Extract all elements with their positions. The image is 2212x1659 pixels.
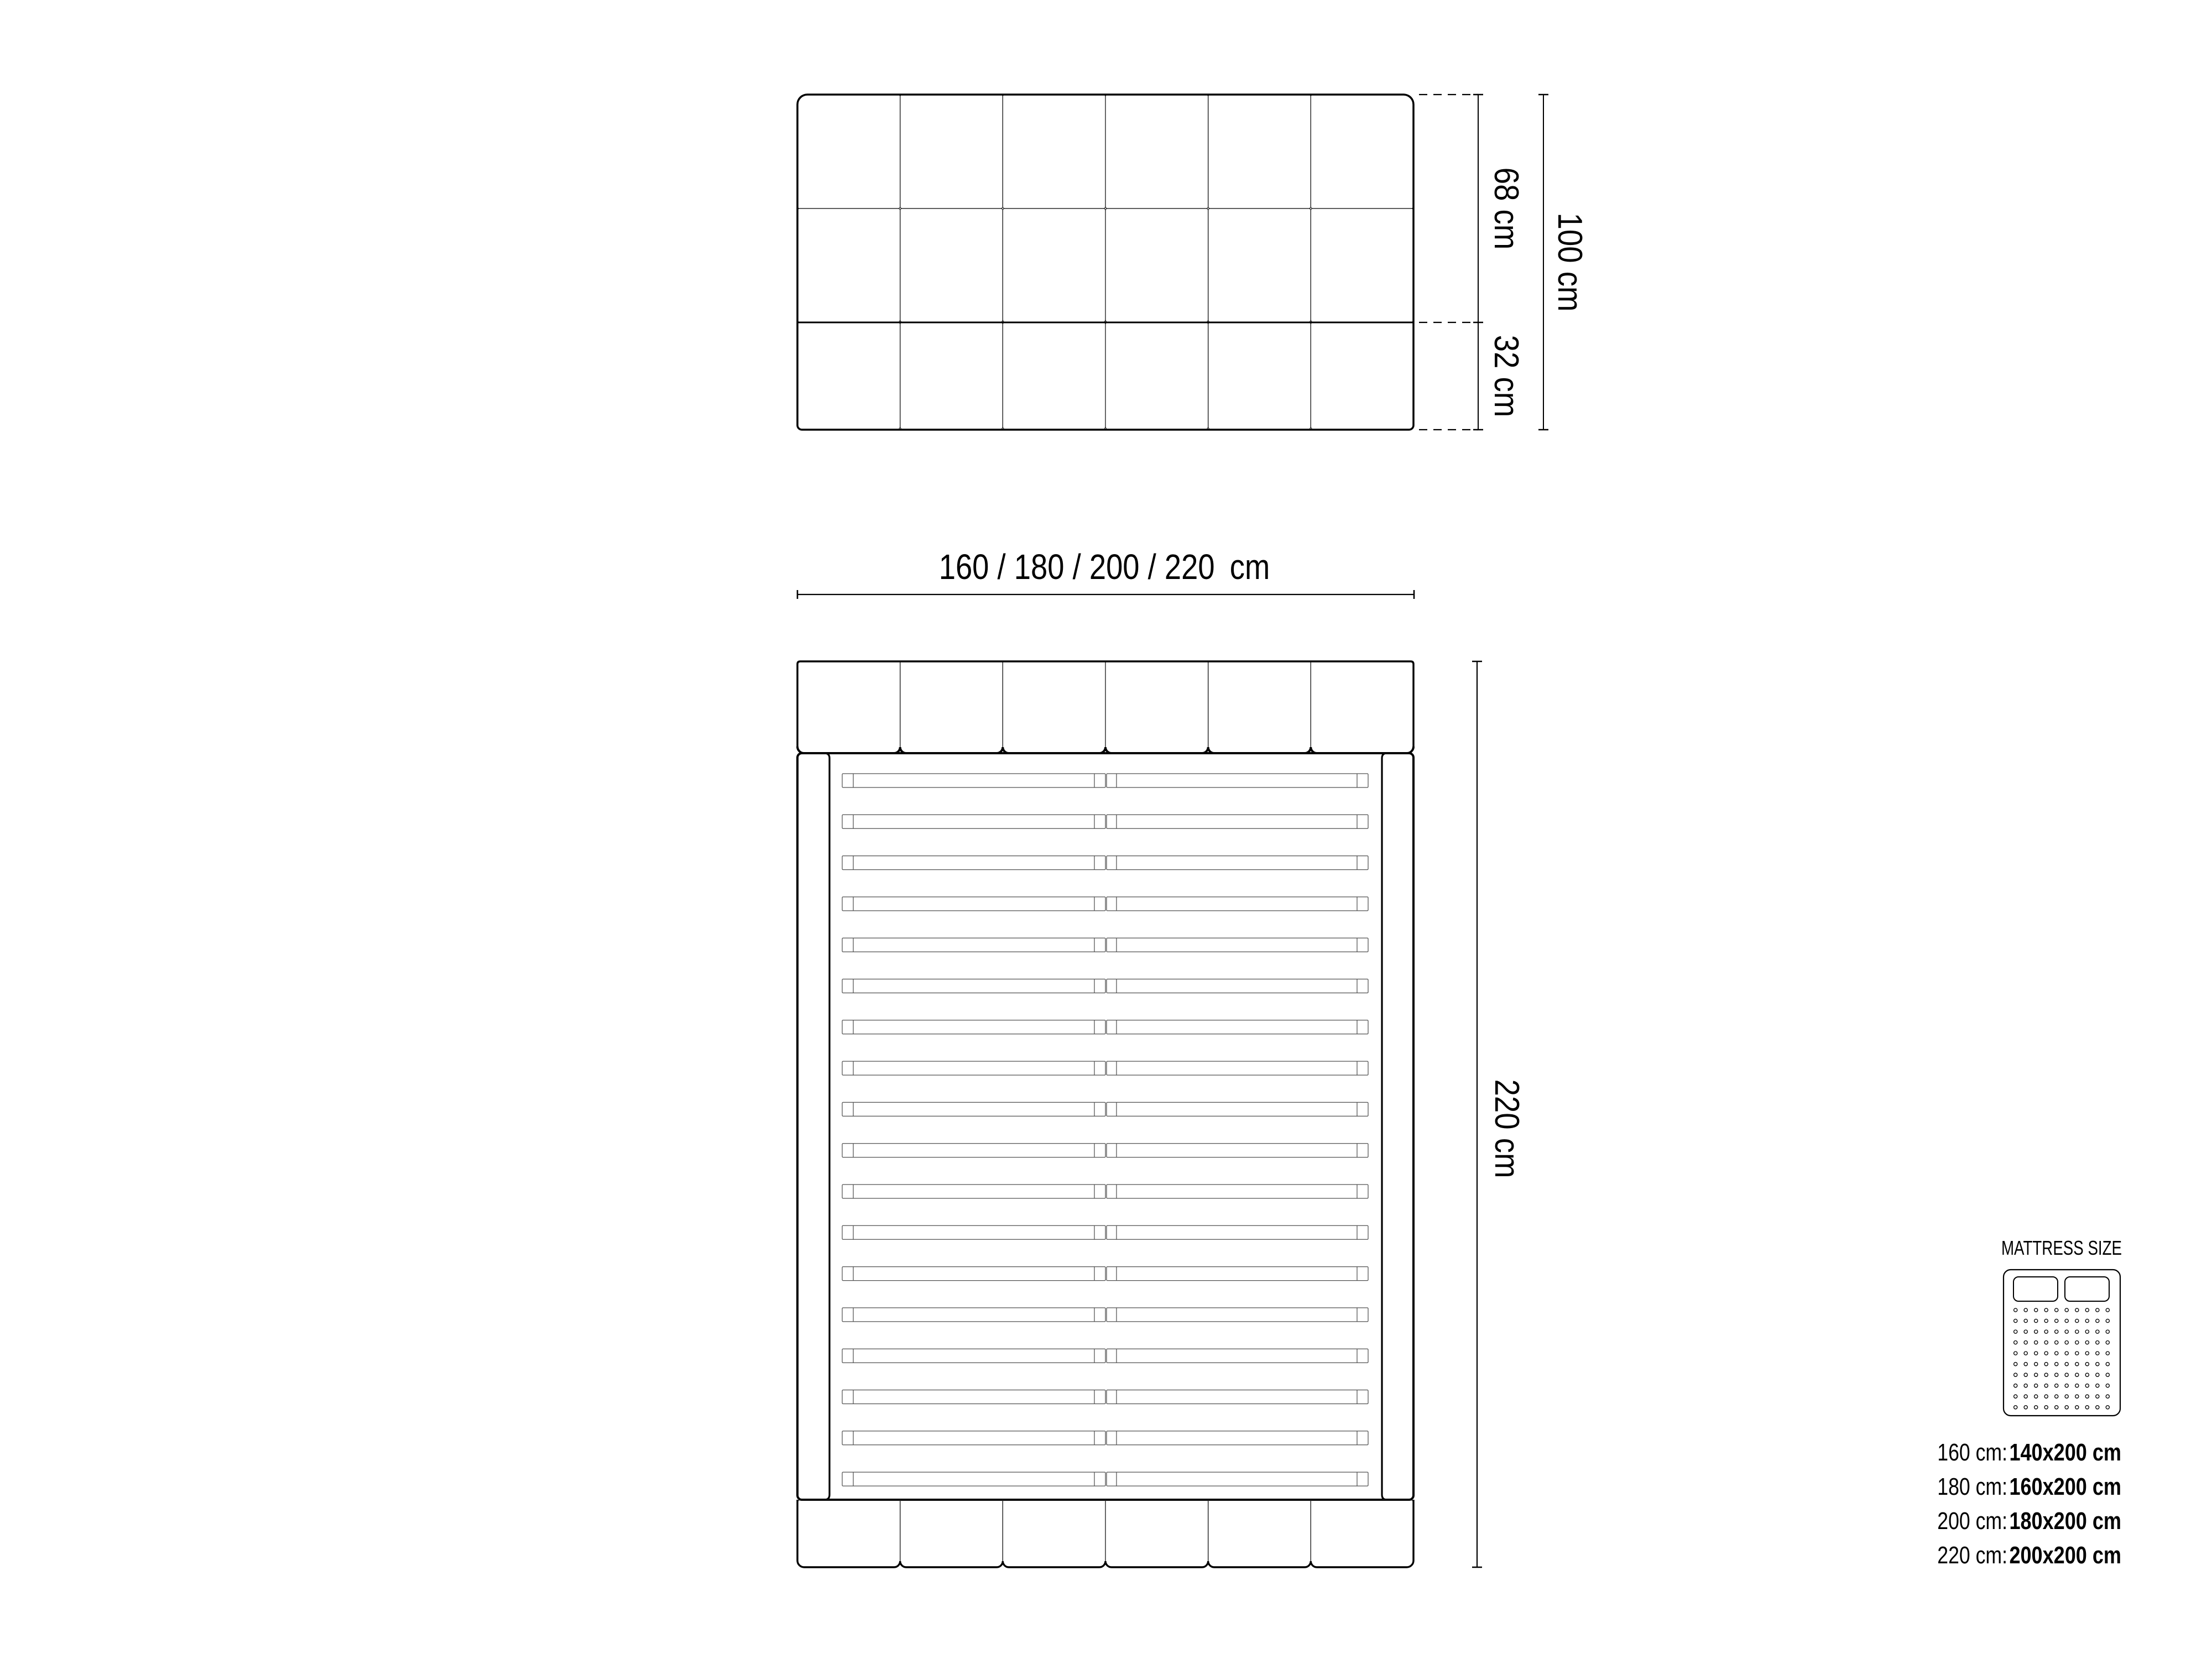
svg-text:200x200 cm: 200x200 cm [2009, 1542, 2121, 1569]
svg-text:160x200 cm: 160x200 cm [2009, 1473, 2121, 1500]
svg-text:160 cm:: 160 cm: [1937, 1439, 2007, 1466]
svg-text:220 cm: 220 cm [1488, 1079, 1526, 1178]
svg-text:180 cm:: 180 cm: [1937, 1474, 2007, 1500]
svg-text:100 cm: 100 cm [1551, 213, 1589, 312]
svg-text:MATTRESS SIZE: MATTRESS SIZE [2001, 1237, 2122, 1259]
svg-text:32 cm: 32 cm [1487, 335, 1525, 418]
svg-text:200 cm:: 200 cm: [1937, 1508, 2007, 1535]
svg-text:68 cm: 68 cm [1487, 168, 1525, 250]
svg-text:180x200 cm: 180x200 cm [2009, 1507, 2121, 1535]
svg-text:160 / 180 / 200 / 220 cm: 160 / 180 / 200 / 220 cm [939, 547, 1270, 587]
svg-text:220 cm:: 220 cm: [1937, 1542, 2007, 1569]
svg-text:140x200 cm: 140x200 cm [2009, 1439, 2121, 1466]
